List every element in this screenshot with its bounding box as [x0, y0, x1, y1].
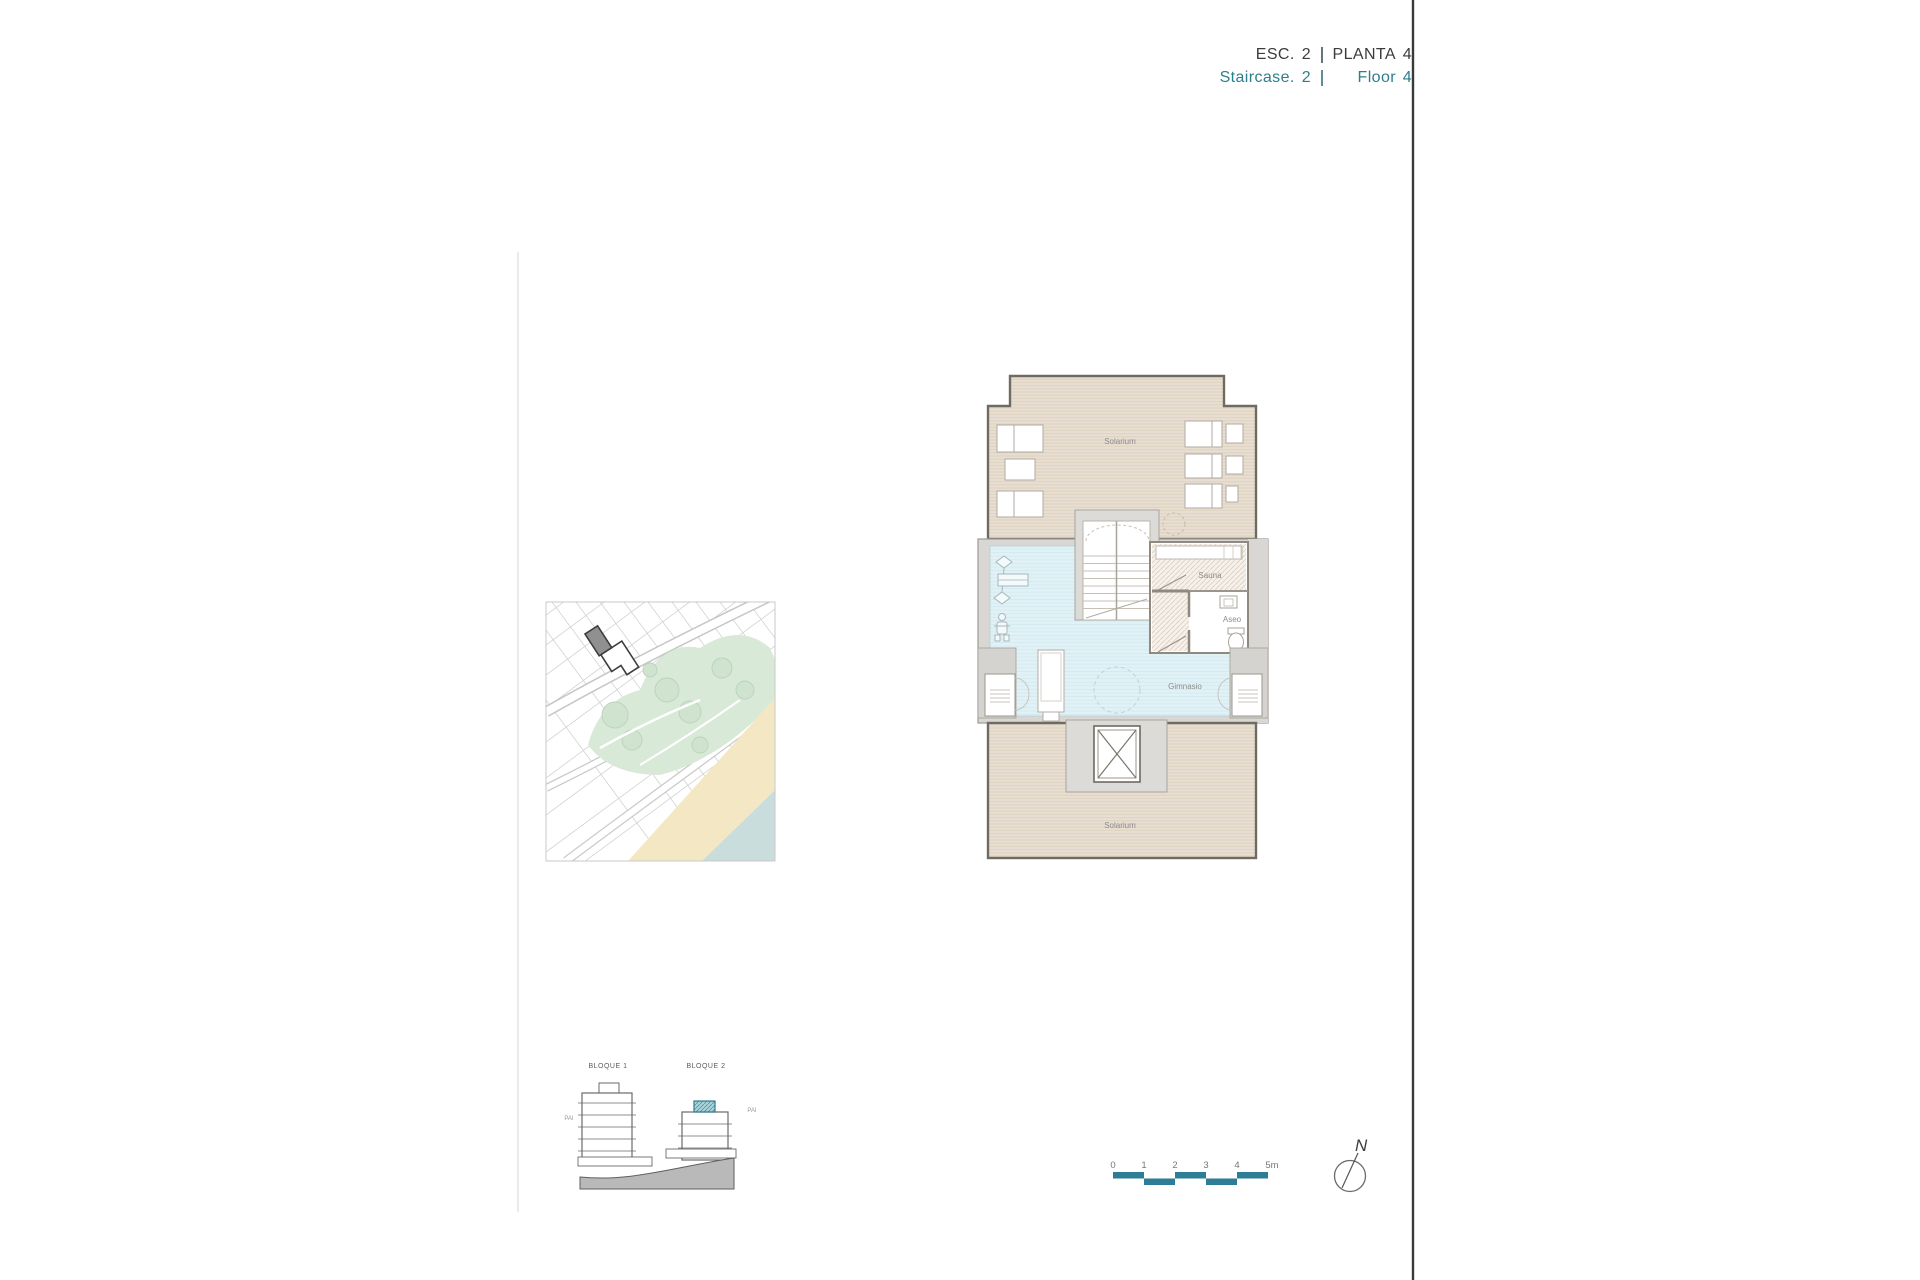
- gym-label: Gimnasio: [1168, 682, 1202, 691]
- scale-tick: 2: [1172, 1160, 1177, 1171]
- toilet-label: Aseo: [1223, 615, 1242, 624]
- scale-bar: 0 1 2 3 4 5m: [1110, 1160, 1278, 1185]
- drawing-canvas: Solarium Gimnasio Sauna Aseo Solarium BL…: [0, 0, 1920, 1280]
- solarium-bottom-label: Solarium: [1104, 821, 1136, 830]
- scale-tick: 3: [1203, 1160, 1208, 1171]
- sun-lounger: [1185, 454, 1222, 478]
- block1-label: BLOQUE 1: [588, 1063, 627, 1070]
- scale-tick: 5m: [1265, 1160, 1278, 1171]
- scale-bar-segments: [1113, 1172, 1268, 1185]
- sauna-label: Sauna: [1198, 571, 1222, 580]
- plan-sheet: ESC. 2 PLANTA 4 Staircase. 2 Floor 4: [0, 0, 1920, 1280]
- block1-building: [578, 1083, 636, 1165]
- floor-plan: Solarium Gimnasio Sauna Aseo Solarium: [978, 376, 1268, 858]
- side-table: [1226, 424, 1243, 443]
- elevation-diagram: BLOQUE 1 BLOQUE 2: [564, 1063, 757, 1189]
- stairwell: [1075, 510, 1159, 620]
- sun-lounger: [997, 491, 1043, 517]
- pai-left-label: PAI: [564, 1116, 574, 1122]
- sun-lounger: [1185, 484, 1222, 508]
- block2-label: BLOQUE 2: [686, 1063, 725, 1070]
- compass-needle: [1342, 1153, 1358, 1188]
- side-table: [1005, 459, 1035, 480]
- site-map: [546, 446, 775, 925]
- sauna-room: [1150, 542, 1248, 653]
- scale-tick: 0: [1110, 1160, 1115, 1171]
- solarium-top-label: Solarium: [1104, 437, 1136, 446]
- elevator: [1066, 720, 1167, 792]
- scale-tick: 4: [1234, 1160, 1239, 1171]
- vestibule: [1152, 592, 1189, 651]
- massage-lounger: [1038, 650, 1064, 721]
- highlight-floor: [694, 1101, 715, 1112]
- compass: N: [1335, 1136, 1369, 1192]
- side-table: [1226, 456, 1243, 474]
- scale-tick: 1: [1141, 1160, 1146, 1171]
- side-table: [1226, 486, 1238, 502]
- sauna-bench: [1156, 546, 1242, 559]
- sun-lounger: [997, 425, 1043, 452]
- sun-lounger: [1185, 421, 1222, 447]
- north-label: N: [1355, 1136, 1368, 1155]
- pai-right-label: PAI: [747, 1108, 757, 1114]
